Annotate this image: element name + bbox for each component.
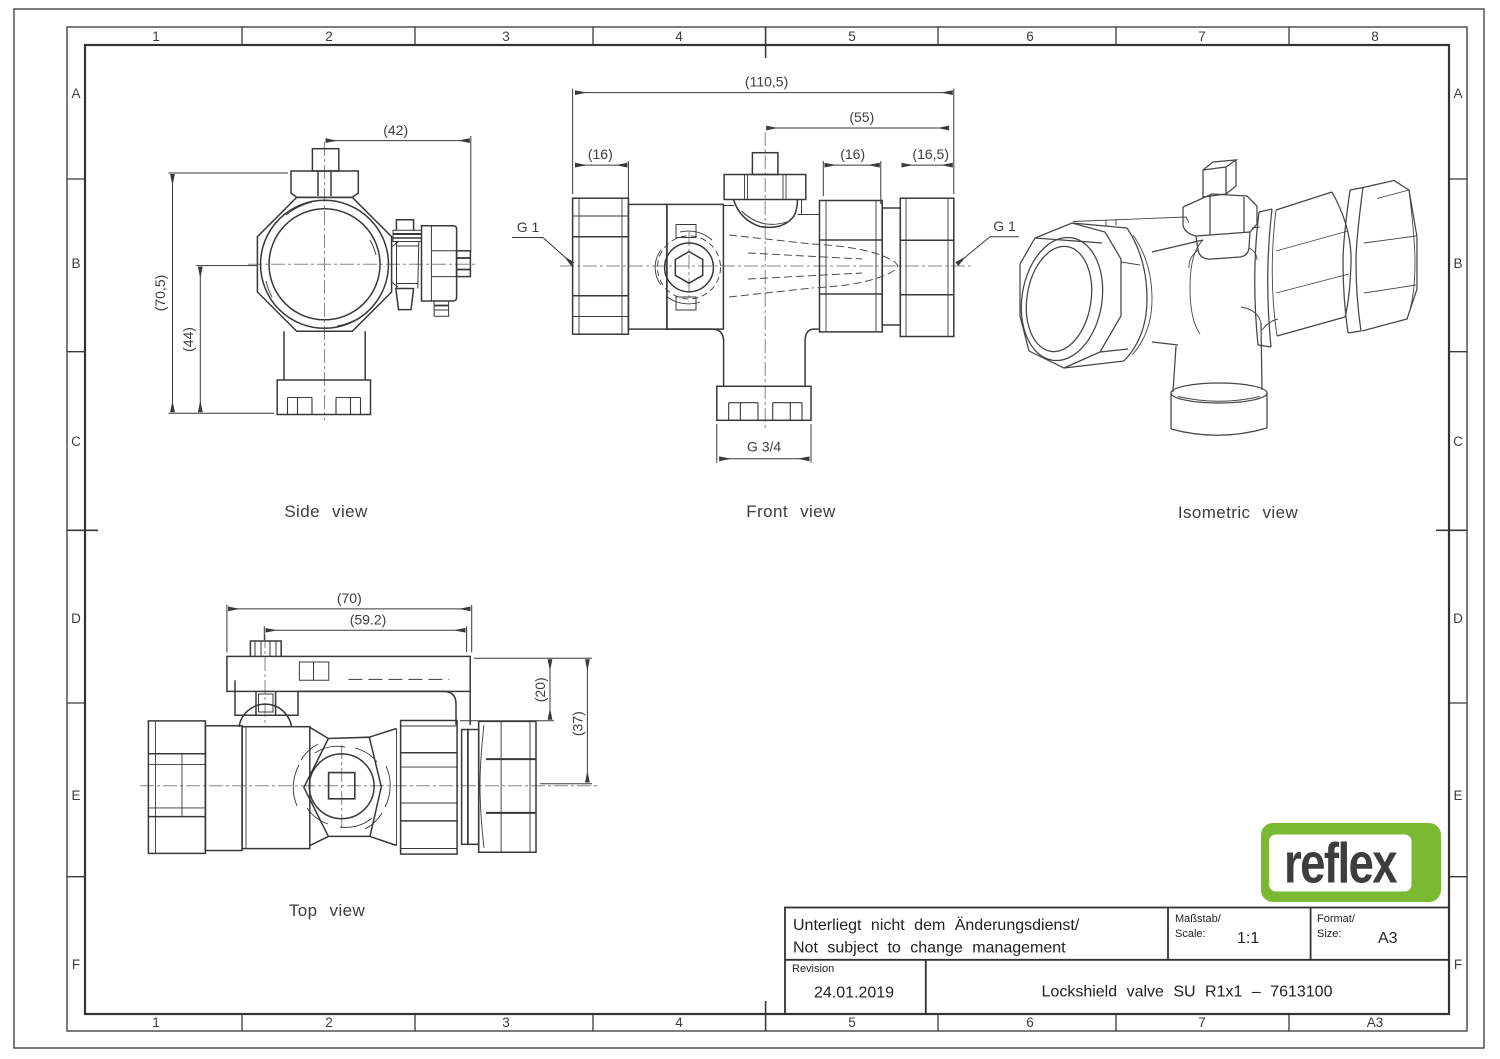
svg-text:Top view: Top view: [289, 901, 366, 920]
svg-text:24.01.2019: 24.01.2019: [814, 985, 894, 1002]
svg-text:Scale:: Scale:: [1175, 928, 1206, 940]
svg-text:reflex: reflex: [1284, 831, 1398, 895]
svg-text:1: 1: [152, 29, 160, 44]
svg-text:5: 5: [848, 1015, 856, 1030]
svg-text:D: D: [71, 611, 81, 626]
svg-text:Isometric view: Isometric view: [1178, 503, 1299, 522]
svg-text:3: 3: [502, 1015, 510, 1030]
svg-text:A3: A3: [1378, 930, 1398, 947]
svg-text:Side view: Side view: [284, 502, 368, 521]
svg-text:(55): (55): [849, 109, 874, 125]
svg-text:A3: A3: [1367, 1015, 1384, 1030]
svg-text:Front view: Front view: [746, 502, 836, 521]
svg-text:Size:: Size:: [1317, 928, 1341, 940]
svg-text:7: 7: [1198, 29, 1206, 44]
svg-text:C: C: [1453, 434, 1463, 449]
svg-text:(20): (20): [532, 677, 548, 702]
svg-text:5: 5: [848, 29, 856, 44]
svg-text:G 1: G 1: [517, 219, 540, 235]
svg-text:3: 3: [502, 29, 510, 44]
svg-text:1:1: 1:1: [1237, 930, 1259, 947]
svg-text:Lockshield valve SU R1x1 – 761: Lockshield valve SU R1x1 – 7613100: [1042, 984, 1333, 1001]
svg-text:7: 7: [1198, 1015, 1206, 1030]
svg-text:F: F: [1454, 957, 1462, 972]
svg-text:6: 6: [1026, 29, 1034, 44]
svg-text:A: A: [1453, 86, 1462, 101]
svg-text:(16): (16): [588, 146, 613, 162]
svg-text:4: 4: [675, 1015, 683, 1030]
svg-text:6: 6: [1026, 1015, 1034, 1030]
svg-text:(42): (42): [383, 122, 408, 138]
svg-text:G 1: G 1: [993, 218, 1016, 234]
svg-text:G 3/4: G 3/4: [747, 439, 781, 455]
svg-text:2: 2: [325, 1015, 333, 1030]
svg-text:(16,5): (16,5): [912, 146, 949, 162]
svg-text:E: E: [71, 788, 80, 803]
svg-text:E: E: [1453, 788, 1462, 803]
svg-text:Unterliegt nicht dem Änderungs: Unterliegt nicht dem Änderungsdienst/: [793, 916, 1080, 934]
svg-text:(44): (44): [180, 327, 196, 352]
svg-text:(59.2): (59.2): [350, 611, 387, 627]
svg-text:Not subject to change manageme: Not subject to change management: [793, 940, 1066, 957]
svg-text:C: C: [71, 434, 81, 449]
svg-text:D: D: [1453, 611, 1463, 626]
svg-text:(110,5): (110,5): [745, 74, 788, 90]
svg-text:4: 4: [675, 29, 683, 44]
svg-text:(70): (70): [337, 590, 362, 606]
svg-text:B: B: [71, 256, 80, 271]
svg-text:(37): (37): [569, 711, 585, 736]
svg-text:F: F: [72, 957, 80, 972]
svg-text:Format/: Format/: [1317, 913, 1356, 925]
svg-text:1: 1: [152, 1015, 160, 1030]
svg-text:(70,5): (70,5): [152, 275, 168, 312]
svg-text:(16): (16): [840, 146, 865, 162]
svg-text:Maßstab/: Maßstab/: [1175, 913, 1222, 925]
svg-text:2: 2: [325, 29, 333, 44]
svg-text:Revision: Revision: [792, 963, 834, 975]
svg-text:8: 8: [1371, 29, 1379, 44]
svg-text:A: A: [71, 86, 80, 101]
svg-text:B: B: [1453, 256, 1462, 271]
